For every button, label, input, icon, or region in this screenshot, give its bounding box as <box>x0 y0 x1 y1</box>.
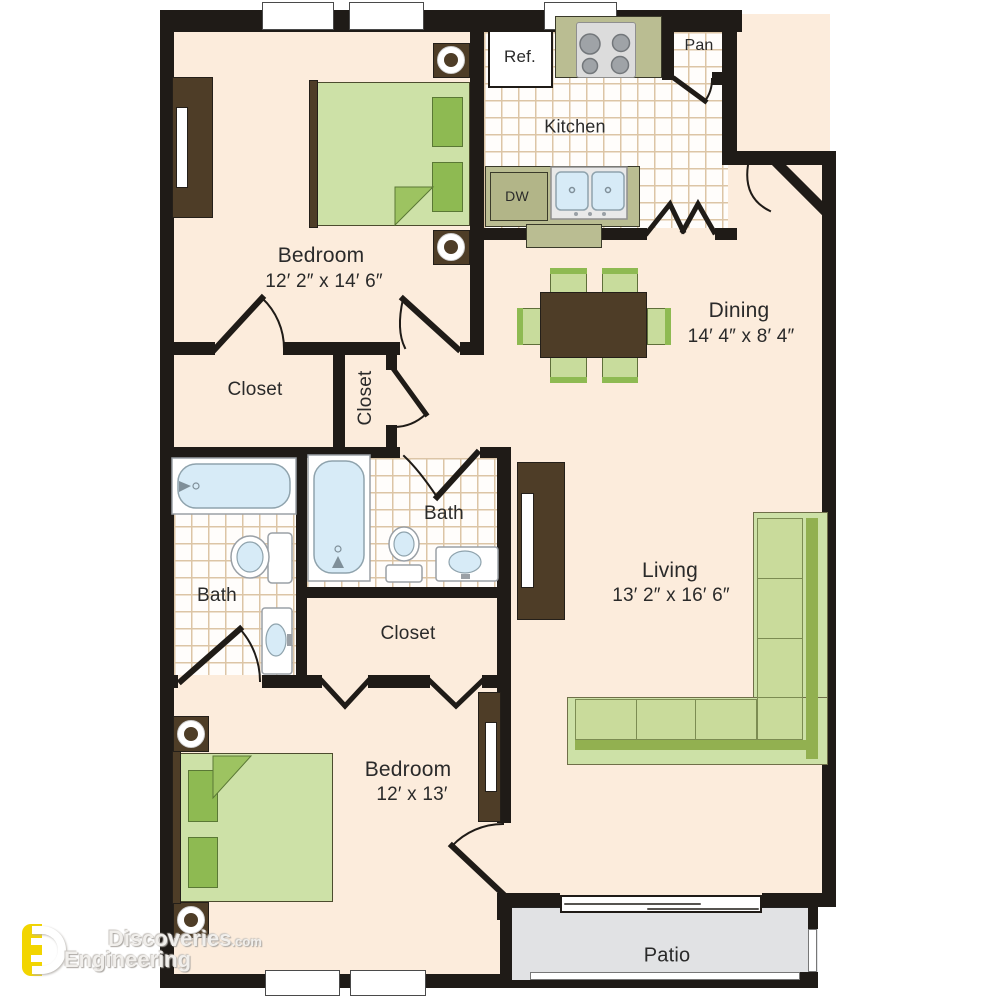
bath1-tub <box>172 458 296 514</box>
label-kitchen: Kitchen <box>544 117 605 138</box>
label-bath2: Bath <box>424 503 464 525</box>
label-bedroom2-dims: 12′ x 13′ <box>376 784 447 806</box>
bath1-vanity <box>262 608 292 674</box>
door-closet2 <box>392 367 426 427</box>
label-bath1: Bath <box>197 585 237 607</box>
door-bedroom1-closet1 <box>215 298 284 349</box>
door-entry <box>747 162 822 211</box>
door-bath2 <box>404 453 477 497</box>
bifold-doors-closet3 <box>322 681 482 706</box>
kitchen-sink <box>551 167 627 219</box>
bath2-vanity <box>436 547 498 581</box>
label-dishwasher: DW <box>505 188 529 204</box>
bed2-blanket-fold <box>213 756 251 798</box>
floor-plan: Ref. Pan Kitchen DW Dining 14′ 4″ x 8′ 4… <box>0 0 1000 1000</box>
stove-burners <box>580 34 630 74</box>
label-dining-dims: 14′ 4″ x 8′ 4″ <box>688 326 795 348</box>
watermark-logo-d-ring <box>32 926 66 974</box>
label-pantry: Pan <box>684 37 713 55</box>
label-bedroom2: Bedroom <box>365 758 452 782</box>
label-living: Living <box>642 559 698 583</box>
label-patio: Patio <box>644 945 691 968</box>
bed1-blanket-fold <box>395 187 433 225</box>
watermark-engineering: Engineering <box>64 947 191 973</box>
watermark: Discoveries.com Engineering <box>0 915 260 985</box>
label-closet1: Closet <box>227 379 282 401</box>
watermark-brand-suffix: .com <box>232 934 262 949</box>
label-closet2: Closet <box>355 370 377 425</box>
doors-and-fixtures-overlay <box>0 0 1000 1000</box>
bath2-toilet <box>386 527 422 582</box>
bifold-doors-kitchen <box>647 204 714 233</box>
label-bedroom1-dims: 12′ 2″ x 14′ 6″ <box>265 271 383 293</box>
bath2-tub <box>308 455 370 581</box>
label-living-dims: 13′ 2″ x 16′ 6″ <box>612 585 730 607</box>
door-bedroom1-hall <box>400 299 458 349</box>
label-closet3: Closet <box>380 623 435 645</box>
door-pantry <box>675 79 712 101</box>
door-bedroom2 <box>452 824 503 894</box>
sliding-door-lines <box>565 904 758 909</box>
label-refrigerator: Ref. <box>504 47 536 67</box>
label-dining: Dining <box>709 299 770 323</box>
label-bedroom1: Bedroom <box>278 244 365 268</box>
door-bath1 <box>181 629 260 681</box>
bath1-toilet <box>231 533 292 583</box>
